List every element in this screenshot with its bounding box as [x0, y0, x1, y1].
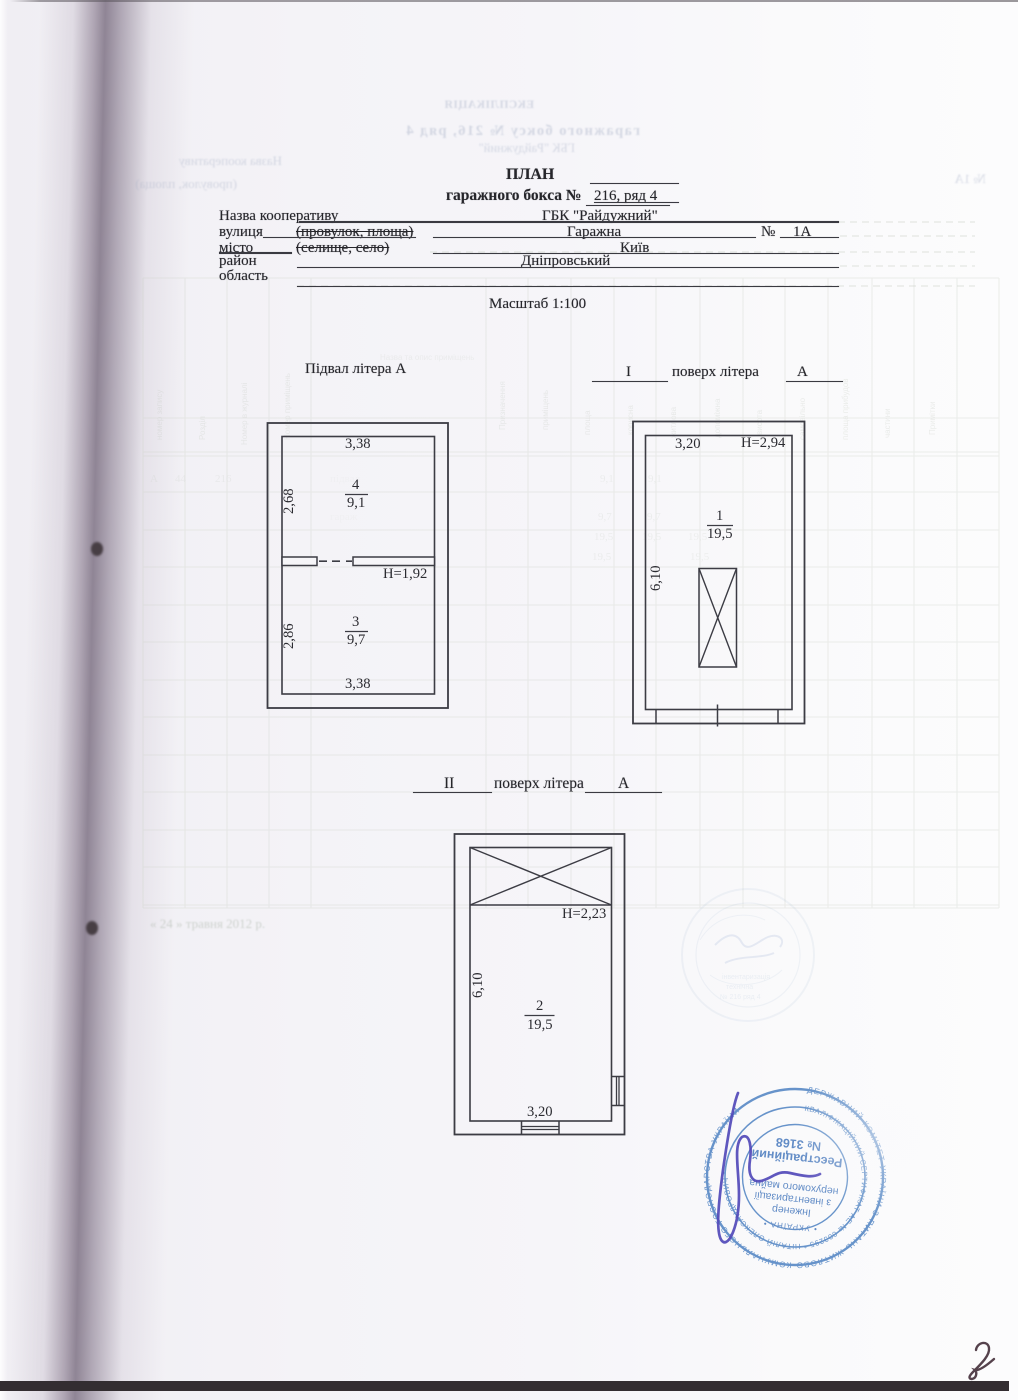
svg-text:216: 216 — [215, 473, 232, 485]
svg-text:частини: частини — [883, 408, 892, 438]
svg-text:ГБК "Райдужний": ГБК "Райдужний" — [479, 141, 575, 155]
svg-text:19,5: 19,5 — [592, 551, 612, 563]
svg-text:9,7: 9,7 — [598, 511, 612, 523]
svg-text:3,20: 3,20 — [527, 1104, 553, 1120]
svg-text:Призначення: Призначення — [498, 381, 507, 430]
svg-text:6,10: 6,10 — [470, 972, 486, 998]
svg-text:технічна: технічна — [726, 983, 753, 991]
svg-text:Примітки: Примітки — [928, 401, 937, 435]
svg-text:« 24 » травня 2012 р.: « 24 » травня 2012 р. — [150, 916, 265, 931]
svg-text:3,38: 3,38 — [345, 436, 371, 452]
svg-text:(провулок, площа): (провулок, площа) — [135, 176, 237, 191]
svg-text:номер запису: номер запису — [155, 390, 164, 440]
svg-text:Н=1,92: Н=1,92 — [383, 566, 427, 582]
svg-text:3,20: 3,20 — [675, 436, 701, 452]
svg-text:ЕКСПЛІКАЦІЯ: ЕКСПЛІКАЦІЯ — [444, 99, 534, 111]
svg-text:2,86: 2,86 — [281, 623, 297, 649]
svg-text:44: 44 — [175, 473, 187, 485]
svg-text:№ 216 ряд 4: № 216 ряд 4 — [720, 994, 761, 1001]
svg-text:4: 4 — [352, 477, 360, 493]
svg-text:3: 3 — [352, 614, 359, 630]
svg-text:19,5: 19,5 — [707, 526, 733, 542]
svg-text:гаражного боксу № 216, ряд 4: гаражного боксу № 216, ряд 4 — [405, 123, 640, 139]
svg-text:9,7: 9,7 — [347, 632, 365, 648]
svg-text:Номер в журналі: Номер в журналі — [240, 382, 249, 445]
svg-text:2: 2 — [536, 998, 543, 1014]
svg-text:Розділ: Розділ — [198, 416, 207, 440]
svg-text:19,5: 19,5 — [594, 531, 614, 543]
svg-text:площа: площа — [583, 410, 592, 435]
svg-text:приміщень: приміщень — [541, 390, 550, 430]
svg-text:інвентаризація: інвентаризація — [722, 973, 770, 981]
svg-text:площа прибудов: площа прибудов — [841, 378, 850, 440]
svg-text:№ 1А: № 1А — [954, 171, 986, 186]
svg-text:Н=2,23: Н=2,23 — [562, 906, 606, 922]
svg-text:3,38: 3,38 — [345, 676, 371, 692]
svg-text:• УКРАЇНА •: • УКРАЇНА • — [762, 1219, 817, 1234]
svg-text:2,68: 2,68 — [281, 488, 297, 514]
svg-text:1: 1 — [716, 508, 723, 524]
svg-text:Н=2,94: Н=2,94 — [741, 435, 786, 451]
svg-text:9,1: 9,1 — [600, 473, 614, 485]
svg-text:А: А — [150, 473, 158, 485]
svg-text:19,5: 19,5 — [527, 1017, 553, 1033]
svg-text:Назва кооперативу: Назва кооперативу — [178, 153, 282, 168]
svg-text:9,1: 9,1 — [347, 495, 365, 511]
svg-text:6,10: 6,10 — [648, 565, 664, 591]
